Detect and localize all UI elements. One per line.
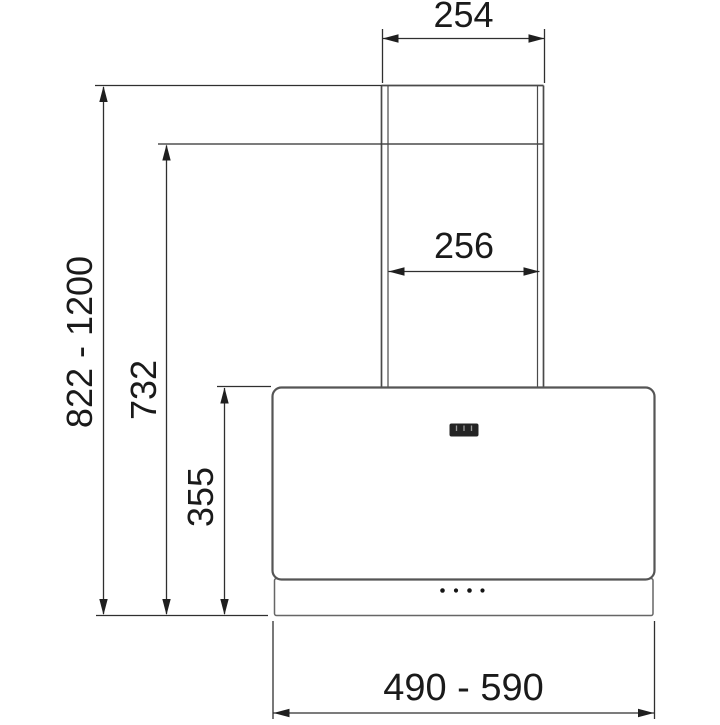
dim-label-256: 256 — [434, 225, 494, 266]
dim-label-822-1200: 822 - 1200 — [59, 256, 100, 428]
hood-glass-panel — [273, 388, 655, 580]
dim-label-490-590: 490 - 590 — [383, 667, 544, 709]
arrow-left-icon — [389, 267, 405, 275]
arrow-down-icon — [162, 599, 170, 615]
arrow-right-icon — [638, 709, 654, 717]
dim-chimney-duct-width: 256 — [389, 225, 540, 276]
arrow-up-icon — [162, 145, 170, 161]
display-panel-icon — [450, 424, 479, 437]
control-dot-icon — [440, 588, 445, 593]
hood-body — [273, 388, 655, 616]
control-dot-icon — [454, 588, 458, 592]
arrow-left-icon — [274, 709, 290, 717]
arrow-up-icon — [220, 388, 228, 404]
extension-lines — [383, 29, 545, 83]
dim-hood-height: 355 — [180, 387, 271, 616]
arrow-down-icon — [99, 599, 107, 615]
arrow-up-icon — [99, 86, 107, 102]
dim-label-732: 732 — [123, 360, 164, 420]
dim-label-355: 355 — [180, 467, 221, 527]
hood-lower-band — [275, 579, 654, 616]
arrow-right-icon — [529, 34, 545, 42]
arrow-down-icon — [220, 599, 228, 615]
control-dot-icon — [467, 588, 472, 593]
arrow-left-icon — [383, 34, 399, 42]
control-dot-icon — [480, 588, 484, 592]
diagram-canvas: 254 256 822 - 1200 732 355 4 — [0, 0, 720, 720]
dim-chimney-top-width: 254 — [383, 0, 545, 83]
range-hood-dimension-drawing: 254 256 822 - 1200 732 355 4 — [0, 0, 720, 720]
dim-hood-width: 490 - 590 — [273, 621, 655, 719]
dim-label-254: 254 — [433, 0, 493, 35]
